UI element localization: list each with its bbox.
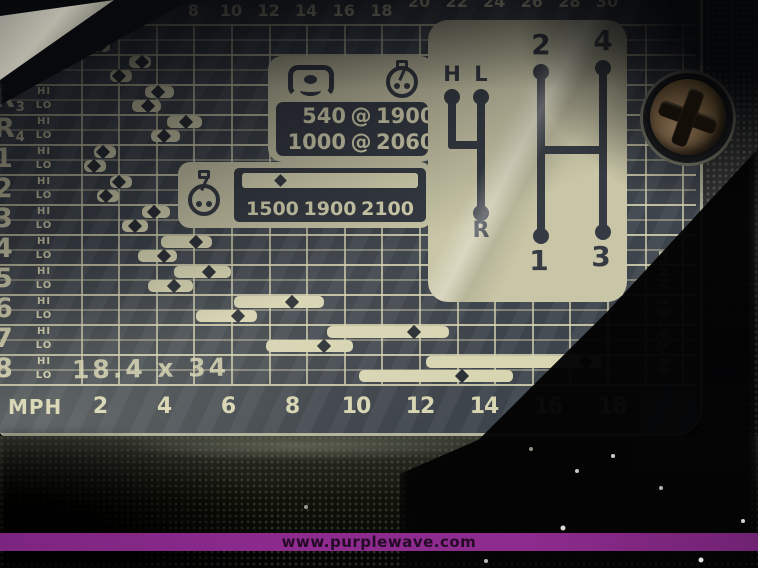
gear-range-lo-label: LO	[30, 279, 58, 293]
tach-icon-globe	[188, 184, 220, 216]
tach-icon	[386, 60, 418, 98]
watermark-text: www.purplewave.com	[282, 533, 477, 551]
gear-number-label: 4	[0, 234, 28, 264]
top-axis-tick: 18	[369, 1, 393, 20]
top-axis-tick: 10	[219, 1, 243, 20]
watermark-stripe: www.purplewave.com	[0, 533, 758, 551]
gear-range-hi-label: HI	[30, 175, 58, 189]
gear-number-label: 3	[0, 204, 28, 234]
rpm-value: 1500	[246, 198, 299, 220]
gear-range-lo-label: LO	[30, 369, 58, 383]
engine-rpm-value: 2060	[376, 129, 434, 155]
top-axis-tick: 26	[520, 0, 544, 11]
at-symbol: @	[346, 103, 376, 129]
gear-range-lo-label: LO	[30, 219, 58, 233]
bottom-axis-tick: 6	[213, 394, 243, 419]
top-axis-tick: 14	[294, 1, 318, 20]
bottom-axis-tick: 14	[469, 394, 499, 419]
pto-speed-box: 540 @ 1900 1000 @ 2060	[268, 56, 434, 162]
gear-range-hi-label: HI	[30, 355, 58, 369]
rpm-value: 1900	[304, 198, 357, 220]
gear-range-lo-label: LO	[30, 129, 58, 143]
pto-speed-panel: 540 @ 1900 1000 @ 2060	[276, 102, 428, 156]
gear-number-label: R4	[0, 114, 28, 144]
bottom-axis-tick: 4	[149, 394, 179, 419]
gear-number-label: 7	[0, 324, 28, 354]
grid-line-horizontal	[0, 309, 696, 311]
tach-icon-globe	[386, 66, 418, 98]
phillips-screw	[650, 79, 726, 155]
speed-range-bar	[359, 370, 513, 382]
speed-range-bar	[266, 340, 352, 352]
top-axis-tick: 8	[181, 1, 205, 20]
gear-number-label: 6	[0, 294, 28, 324]
gear-range-hi-label: HI	[30, 325, 58, 339]
tach-icon-dot	[404, 83, 410, 89]
rpm-scale-panel: 1500 1900 2100	[234, 168, 426, 222]
rpm-value: 2100	[361, 198, 414, 220]
top-axis-tick: 24	[482, 0, 506, 11]
tire-size-text: 18.4 x 34	[72, 353, 229, 385]
gear-range-hi-label: HI	[30, 265, 58, 279]
tach-icon-dot	[394, 83, 400, 89]
gear-range-hi-label: HI	[30, 85, 58, 99]
gear-range-hi-label: HI	[30, 295, 58, 309]
gear-range-lo-label: LO	[30, 339, 58, 353]
bottom-axis-tick: 10	[341, 394, 371, 419]
photo-of-tractor-speed-chart-decal: 468101214161820222426283024681012141618R…	[0, 0, 758, 568]
bottom-axis-tick: 2	[85, 394, 115, 419]
gear-number-label: 1	[0, 144, 28, 174]
gear-range-lo-label: LO	[30, 189, 58, 203]
speed-range-bar	[327, 326, 449, 338]
tach-icon-dot	[196, 201, 202, 207]
gear-number-label: 5	[0, 264, 28, 294]
engine-rpm-value: 1900	[376, 103, 434, 129]
top-axis-tick: 30	[595, 0, 619, 11]
top-axis-tick: 20	[407, 0, 431, 11]
engine-rpm-reference-box: 1500 1900 2100	[178, 162, 432, 228]
gear-range-lo-label: LO	[30, 309, 58, 323]
bottom-axis-tick: 12	[405, 394, 435, 419]
dust-specks	[0, 0, 2, 2]
gear-number-label: 8	[0, 354, 28, 384]
gear-range-hi-label: HI	[30, 115, 58, 129]
pto-icon-arc	[300, 85, 321, 96]
gear-range-lo-label: LO	[30, 159, 58, 173]
pto-icon	[288, 65, 334, 97]
tach-icon	[188, 170, 222, 216]
gear-number-label: 2	[0, 174, 28, 204]
pto-icon-dot	[304, 75, 317, 84]
gear-range-hi-label: HI	[30, 145, 58, 159]
speed-range-bar	[161, 236, 212, 248]
bottom-axis-tick: 8	[277, 394, 307, 419]
speed-range-bar	[196, 310, 257, 322]
at-symbol: @	[346, 129, 376, 155]
tach-icon-dot	[206, 201, 212, 207]
bottom-axis-unit-label: MPH	[8, 395, 62, 419]
top-axis-tick: 28	[557, 0, 581, 11]
gear-range-hi-label: HI	[30, 235, 58, 249]
shift-pattern-box: H L R 2 4 1 3	[428, 20, 627, 302]
rpm-range-bar	[242, 173, 418, 188]
gear-range-lo-label: LO	[30, 99, 58, 113]
gear-range-hi-label: HI	[30, 205, 58, 219]
top-axis-tick: 16	[332, 1, 356, 20]
pto-rpm-value: 1000	[284, 129, 346, 155]
top-axis-tick: 22	[445, 0, 469, 11]
top-axis-tick: 12	[257, 1, 281, 20]
decal-crease-highlight	[428, 20, 627, 302]
pto-rpm-value: 540	[284, 103, 346, 129]
rpm-values-row: 1500 1900 2100	[234, 198, 426, 220]
gear-range-lo-label: LO	[30, 249, 58, 263]
speed-range-bar	[234, 296, 324, 308]
